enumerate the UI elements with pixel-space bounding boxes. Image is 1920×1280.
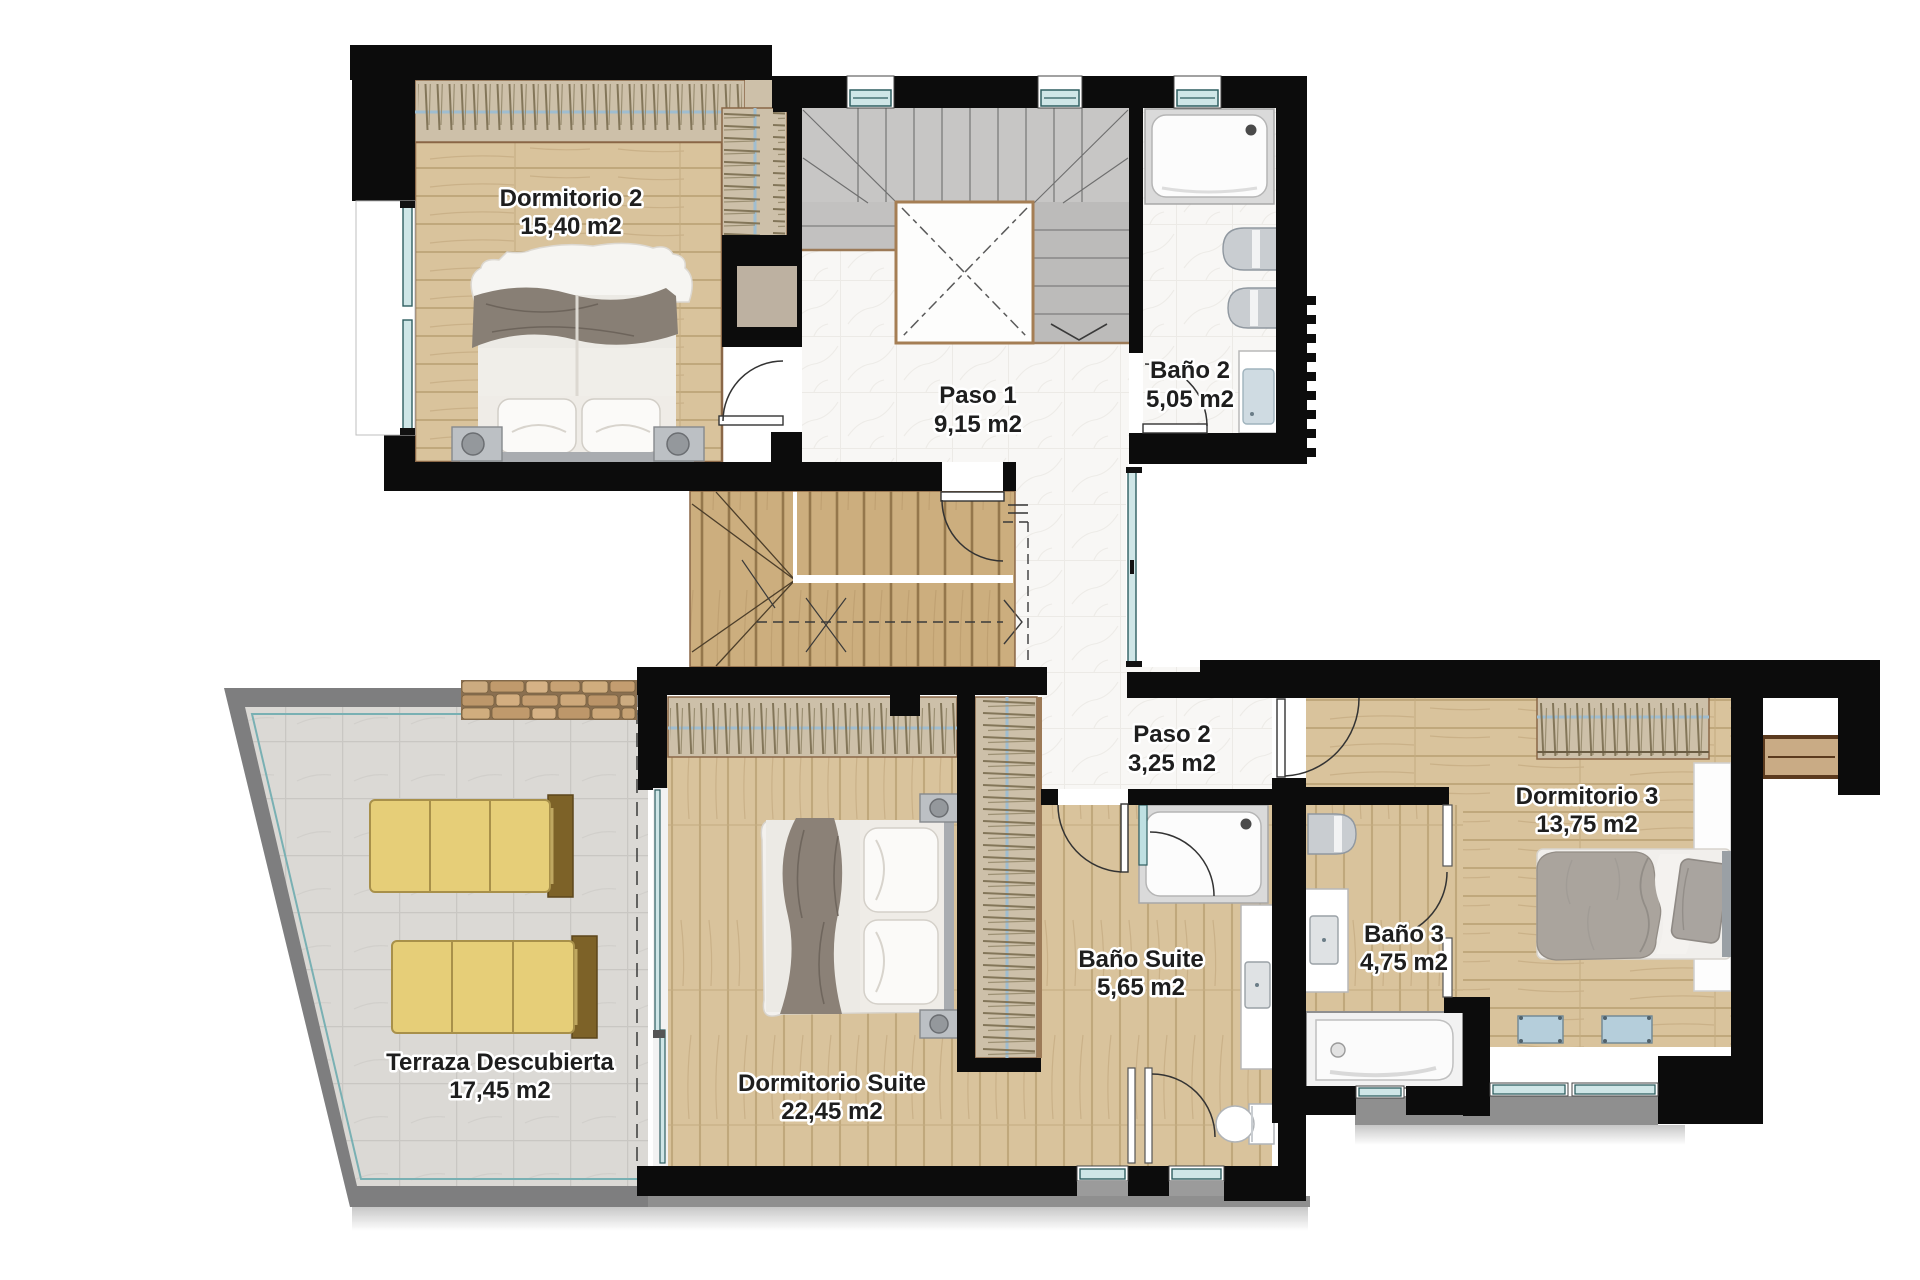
svg-text:Baño 3: Baño 3 — [1364, 921, 1444, 948]
svg-text:Paso 1: Paso 1 — [939, 382, 1016, 409]
svg-text:22,45 m2: 22,45 m2 — [781, 1098, 882, 1125]
svg-text:Baño 2: Baño 2 — [1150, 357, 1230, 384]
svg-text:15,40 m2: 15,40 m2 — [520, 213, 621, 240]
svg-text:5,05 m2: 5,05 m2 — [1146, 386, 1234, 413]
svg-text:Terraza Descubierta: Terraza Descubierta — [386, 1049, 614, 1076]
svg-text:9,15 m2: 9,15 m2 — [934, 411, 1022, 438]
svg-text:Dormitorio 3: Dormitorio 3 — [1516, 783, 1659, 810]
svg-text:13,75 m2: 13,75 m2 — [1536, 811, 1637, 838]
svg-text:4,75 m2: 4,75 m2 — [1360, 949, 1448, 976]
svg-text:17,45 m2: 17,45 m2 — [449, 1077, 550, 1104]
svg-text:5,65 m2: 5,65 m2 — [1097, 974, 1185, 1001]
svg-text:Dormitorio 2: Dormitorio 2 — [500, 185, 643, 212]
svg-text:Dormitorio Suite: Dormitorio Suite — [738, 1070, 926, 1097]
svg-text:Paso 2: Paso 2 — [1133, 721, 1210, 748]
svg-text:Baño Suite: Baño Suite — [1078, 946, 1203, 973]
svg-text:3,25 m2: 3,25 m2 — [1128, 750, 1216, 777]
